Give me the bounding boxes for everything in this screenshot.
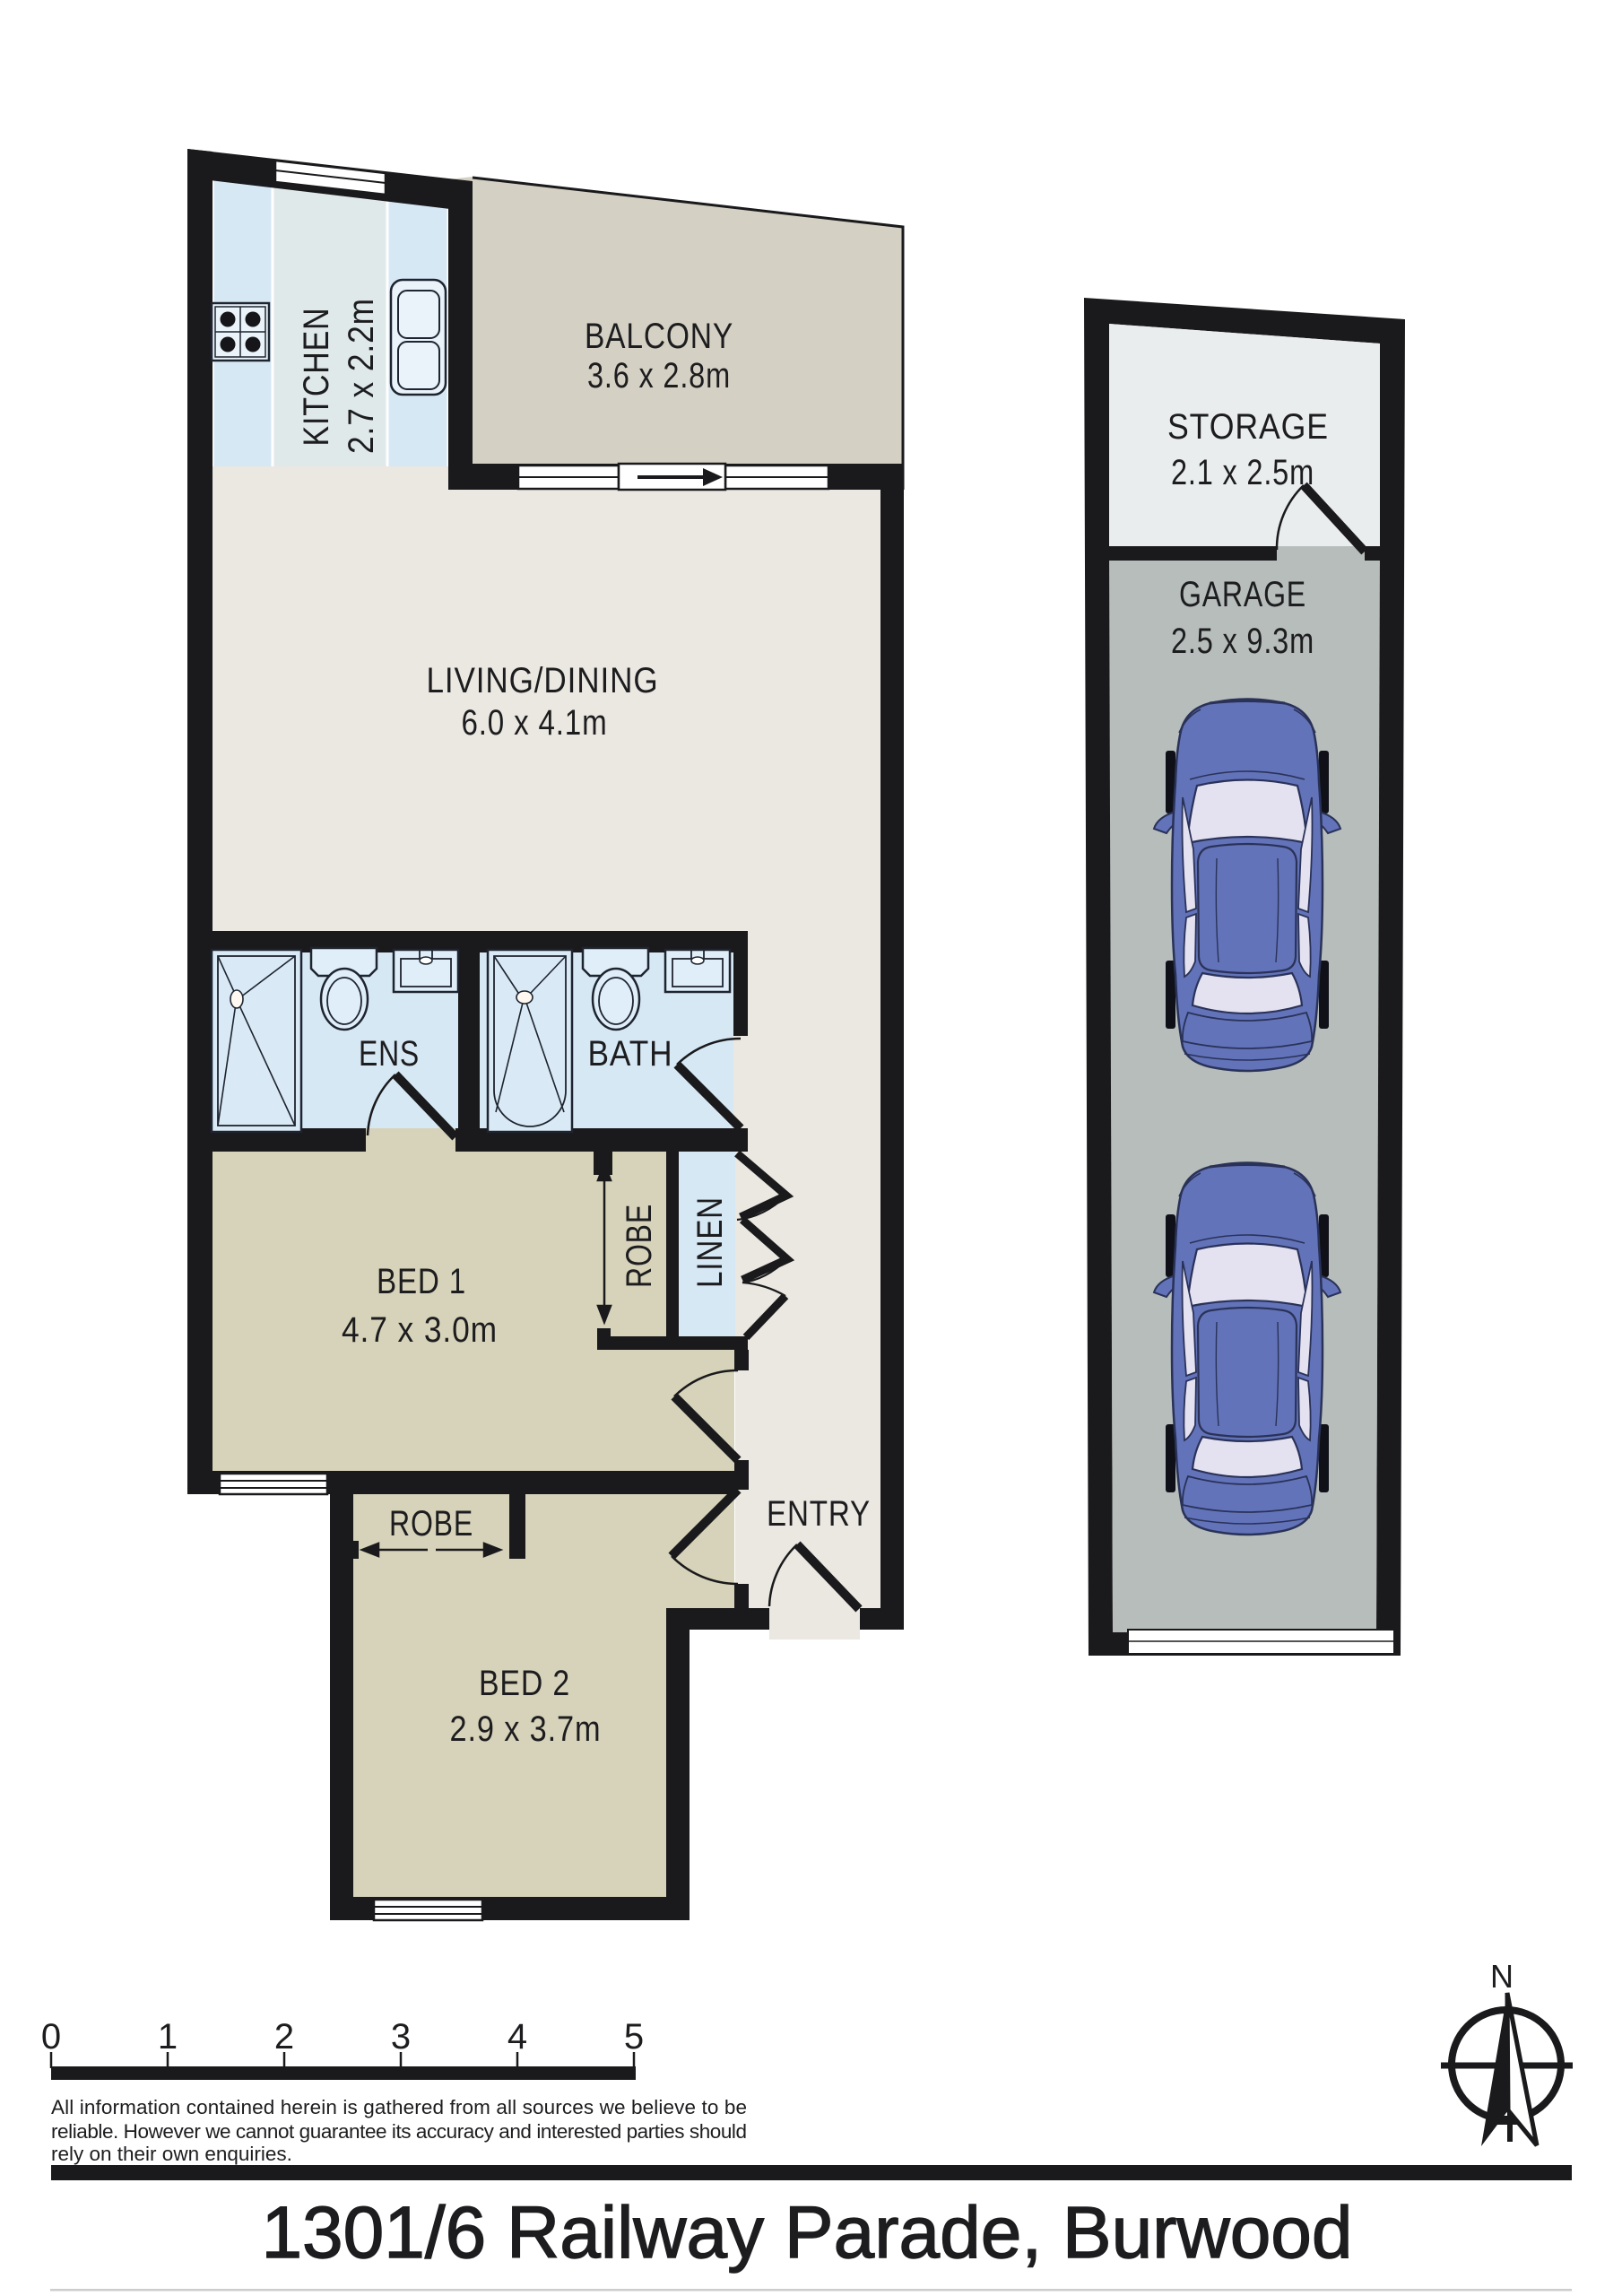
svg-text:All information contained here: All information contained herein is gath…	[51, 2096, 747, 2118]
svg-text:BATH: BATH	[588, 1034, 673, 1074]
svg-text:ROBE: ROBE	[389, 1504, 473, 1544]
svg-text:STORAGE: STORAGE	[1167, 407, 1329, 447]
svg-text:3: 3	[391, 2017, 411, 2057]
svg-text:1301/6 Railway Parade, Burwood: 1301/6 Railway Parade, Burwood	[261, 2192, 1352, 2274]
svg-text:BALCONY: BALCONY	[585, 317, 733, 356]
svg-text:6.0 x 4.1m: 6.0 x 4.1m	[462, 703, 608, 743]
svg-text:BED 2: BED 2	[479, 1664, 570, 1703]
svg-text:ROBE: ROBE	[620, 1204, 659, 1288]
svg-text:ENS: ENS	[359, 1034, 420, 1074]
svg-text:2: 2	[274, 2017, 294, 2057]
svg-text:KITCHEN: KITCHEN	[297, 308, 336, 447]
svg-text:2.1 x 2.5m: 2.1 x 2.5m	[1171, 453, 1314, 492]
svg-text:GARAGE: GARAGE	[1179, 575, 1306, 614]
svg-text:4.7 x 3.0m: 4.7 x 3.0m	[342, 1310, 498, 1350]
svg-text:reliable. However we cannot gu: reliable. However we cannot guarantee it…	[51, 2120, 747, 2143]
svg-text:2.7 x 2.2m: 2.7 x 2.2m	[342, 298, 381, 454]
svg-text:1: 1	[158, 2017, 178, 2057]
svg-text:3.6 x 2.8m: 3.6 x 2.8m	[587, 356, 731, 396]
svg-text:LIVING/DINING: LIVING/DINING	[427, 661, 659, 700]
svg-text:2.5 x 9.3m: 2.5 x 9.3m	[1171, 622, 1314, 661]
svg-text:5: 5	[624, 2017, 644, 2057]
svg-text:4: 4	[507, 2017, 527, 2057]
svg-text:0: 0	[41, 2017, 61, 2057]
svg-text:ENTRY: ENTRY	[767, 1494, 871, 1534]
svg-text:N: N	[1490, 1958, 1514, 1995]
svg-text:2.9 x 3.7m: 2.9 x 3.7m	[450, 1709, 602, 1749]
svg-text:BED 1: BED 1	[377, 1262, 466, 1301]
svg-text:rely on their own enquiries.: rely on their own enquiries.	[51, 2143, 292, 2165]
svg-text:LINEN: LINEN	[690, 1196, 730, 1288]
